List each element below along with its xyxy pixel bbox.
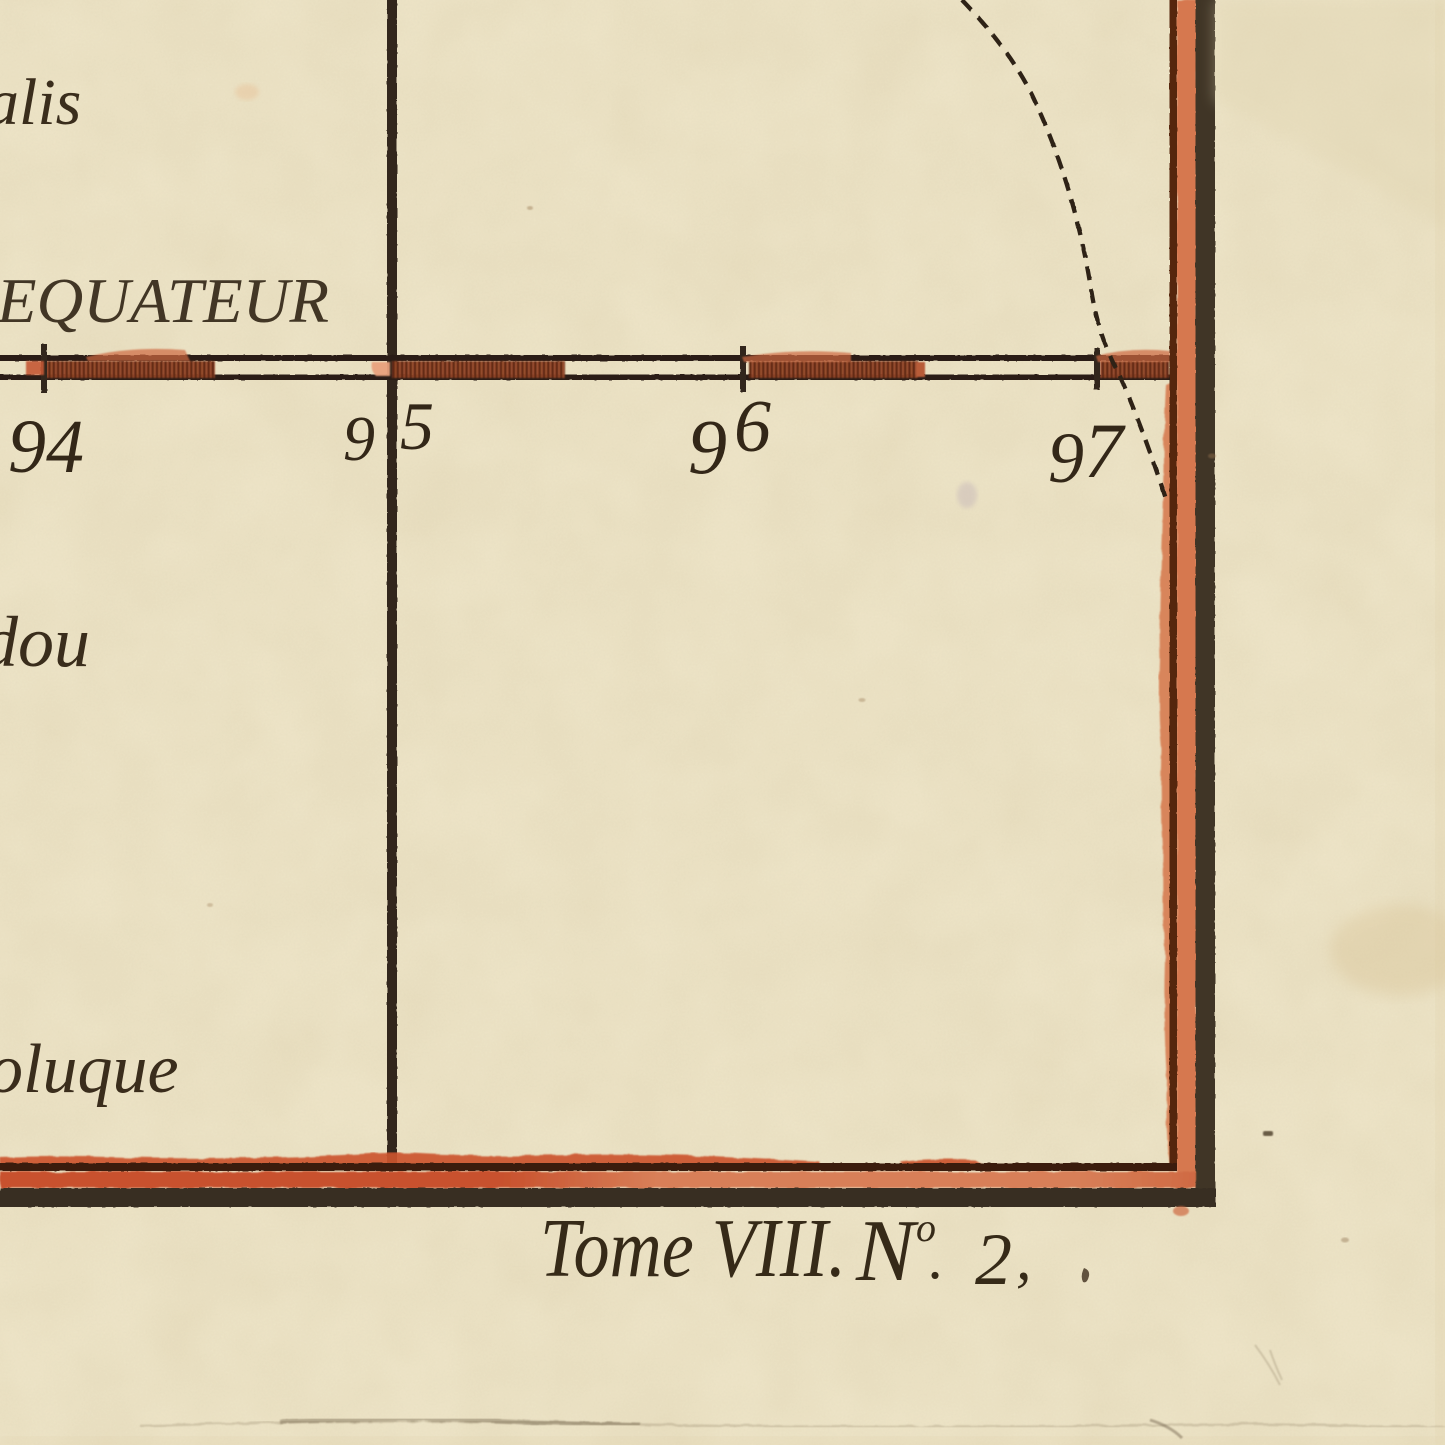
svg-text:oluque: oluque xyxy=(0,1031,179,1108)
svg-text:9: 9 xyxy=(688,403,727,490)
svg-text:9: 9 xyxy=(1048,418,1084,498)
svg-text:alis: alis xyxy=(0,66,81,139)
svg-text:,: , xyxy=(1016,1225,1032,1293)
svg-text:.: . xyxy=(929,1225,944,1291)
svg-text:N: N xyxy=(855,1203,919,1300)
svg-text:2: 2 xyxy=(975,1219,1012,1301)
svg-text:6: 6 xyxy=(734,386,771,468)
svg-text:94: 94 xyxy=(8,405,84,489)
svg-text:Tome VIII.: Tome VIII. xyxy=(540,1202,846,1295)
svg-text:EQUATEUR: EQUATEUR xyxy=(0,265,329,336)
svg-text:9: 9 xyxy=(343,403,375,474)
svg-text:dou: dou xyxy=(0,602,90,682)
svg-text:5: 5 xyxy=(400,388,434,464)
svg-text:7: 7 xyxy=(1084,407,1126,494)
